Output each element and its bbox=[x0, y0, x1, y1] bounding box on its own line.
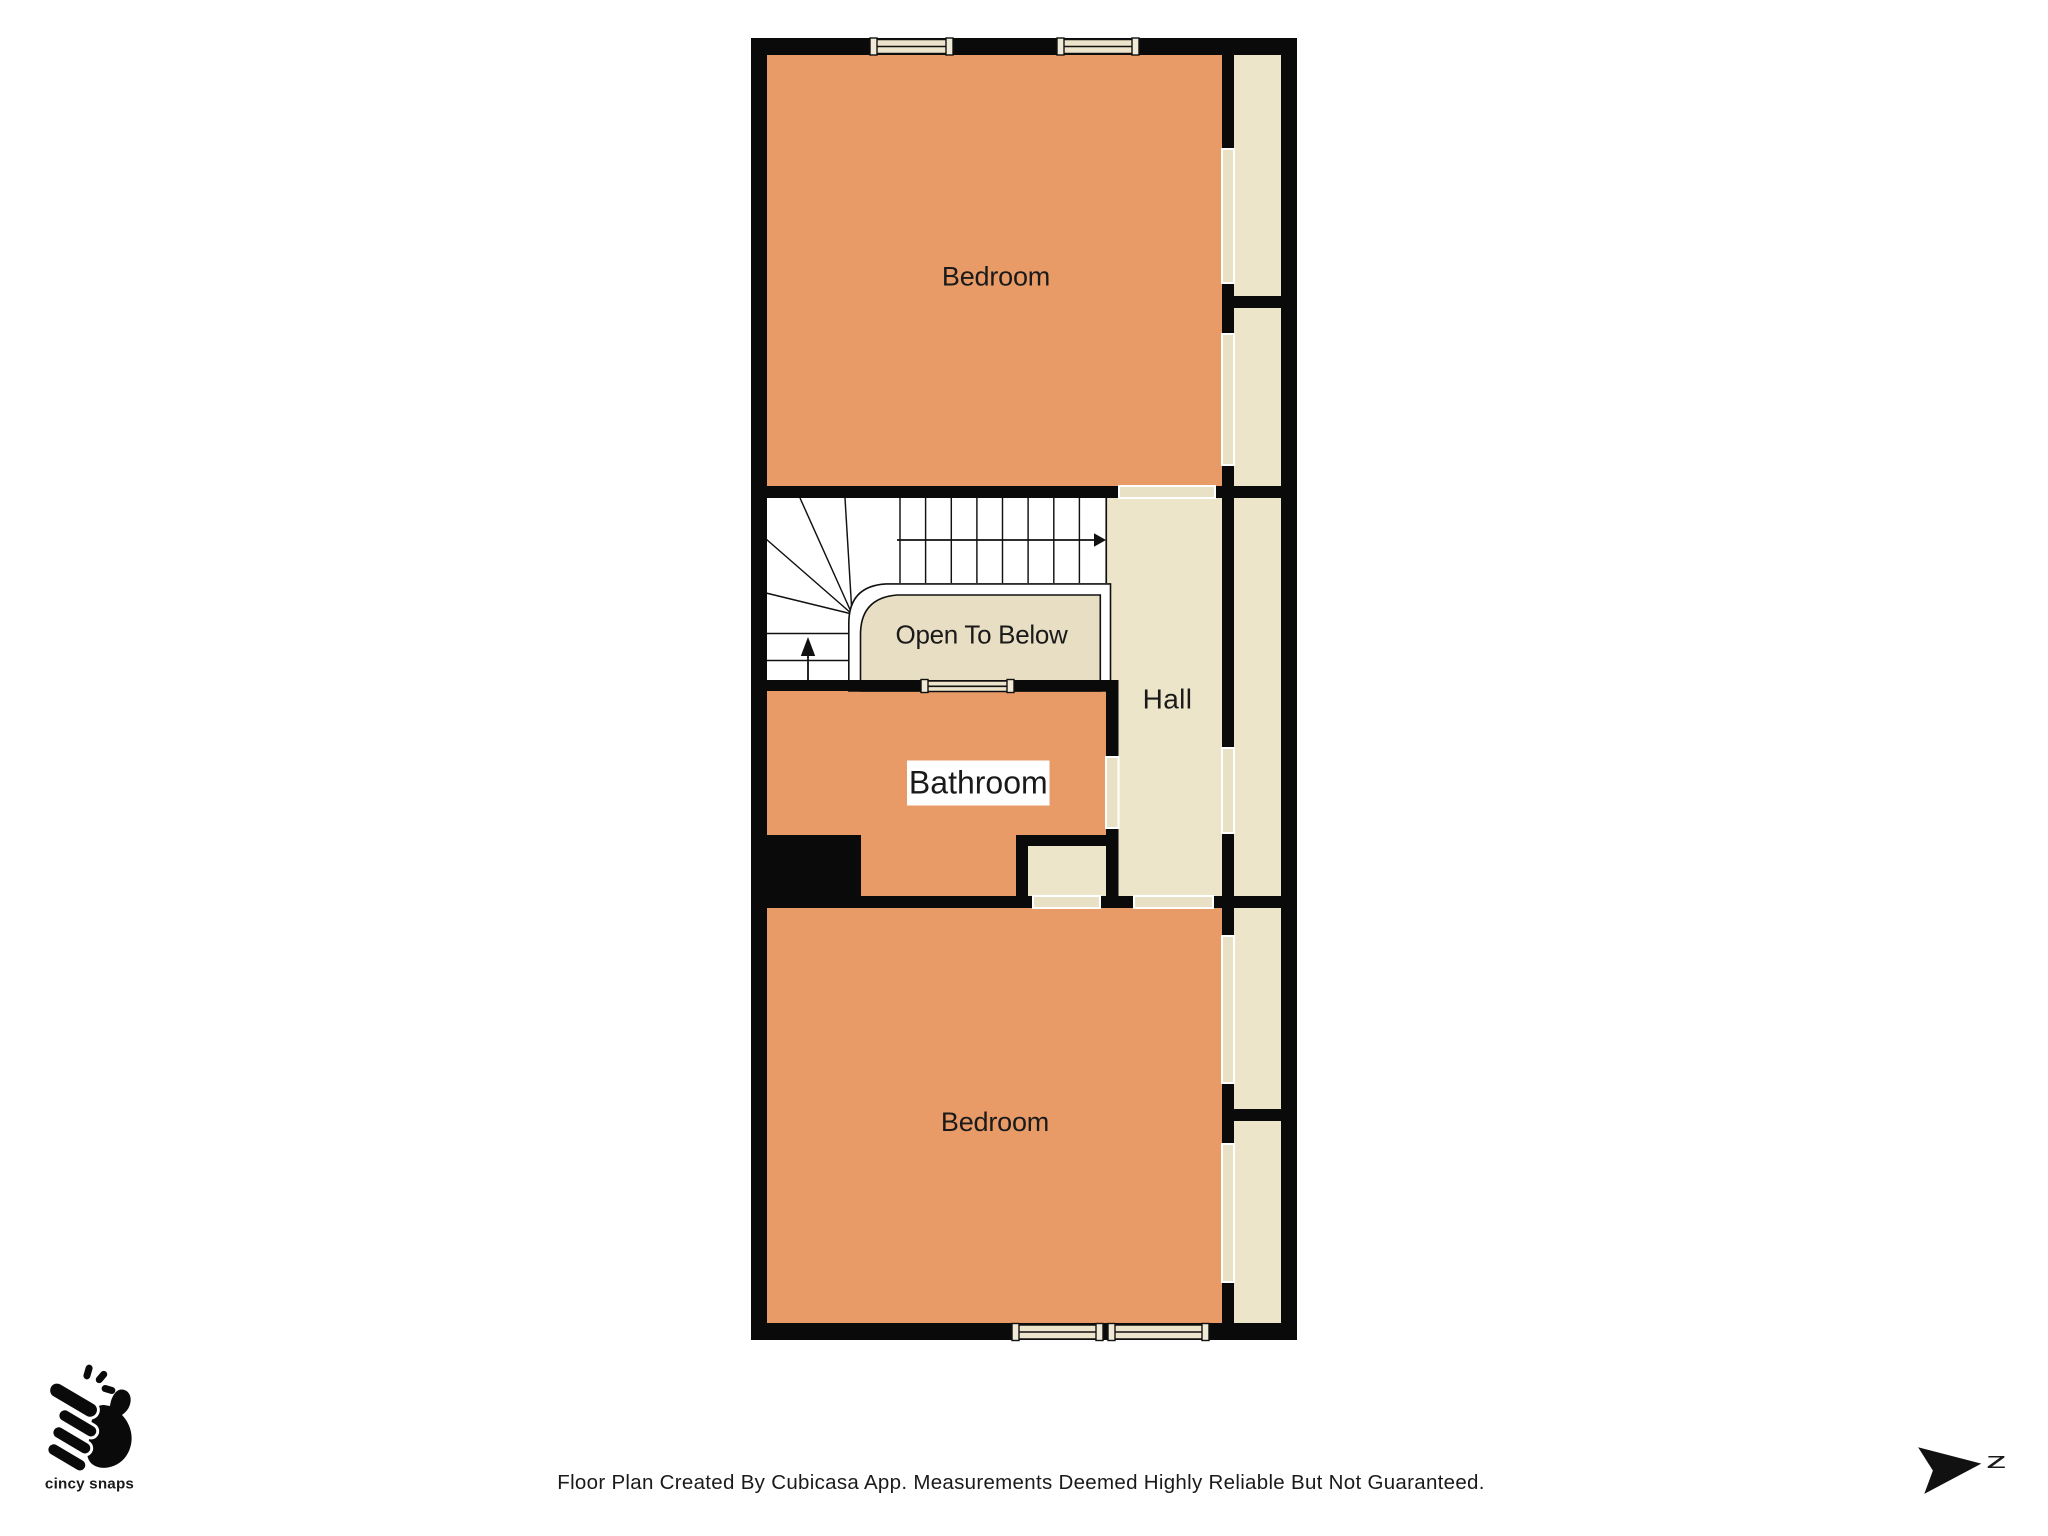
svg-text:z: z bbox=[1986, 1449, 2007, 1473]
svg-text:Floor Plan Created By Cubicasa: Floor Plan Created By Cubicasa App. Meas… bbox=[557, 1471, 1485, 1494]
svg-text:Bedroom: Bedroom bbox=[941, 1107, 1049, 1137]
svg-text:Bathroom: Bathroom bbox=[909, 765, 1048, 801]
svg-text:Bedroom: Bedroom bbox=[942, 262, 1050, 292]
svg-text:cincy snaps: cincy snaps bbox=[45, 1476, 134, 1493]
svg-text:Hall: Hall bbox=[1143, 684, 1193, 715]
svg-text:Open To Below: Open To Below bbox=[896, 620, 1068, 650]
